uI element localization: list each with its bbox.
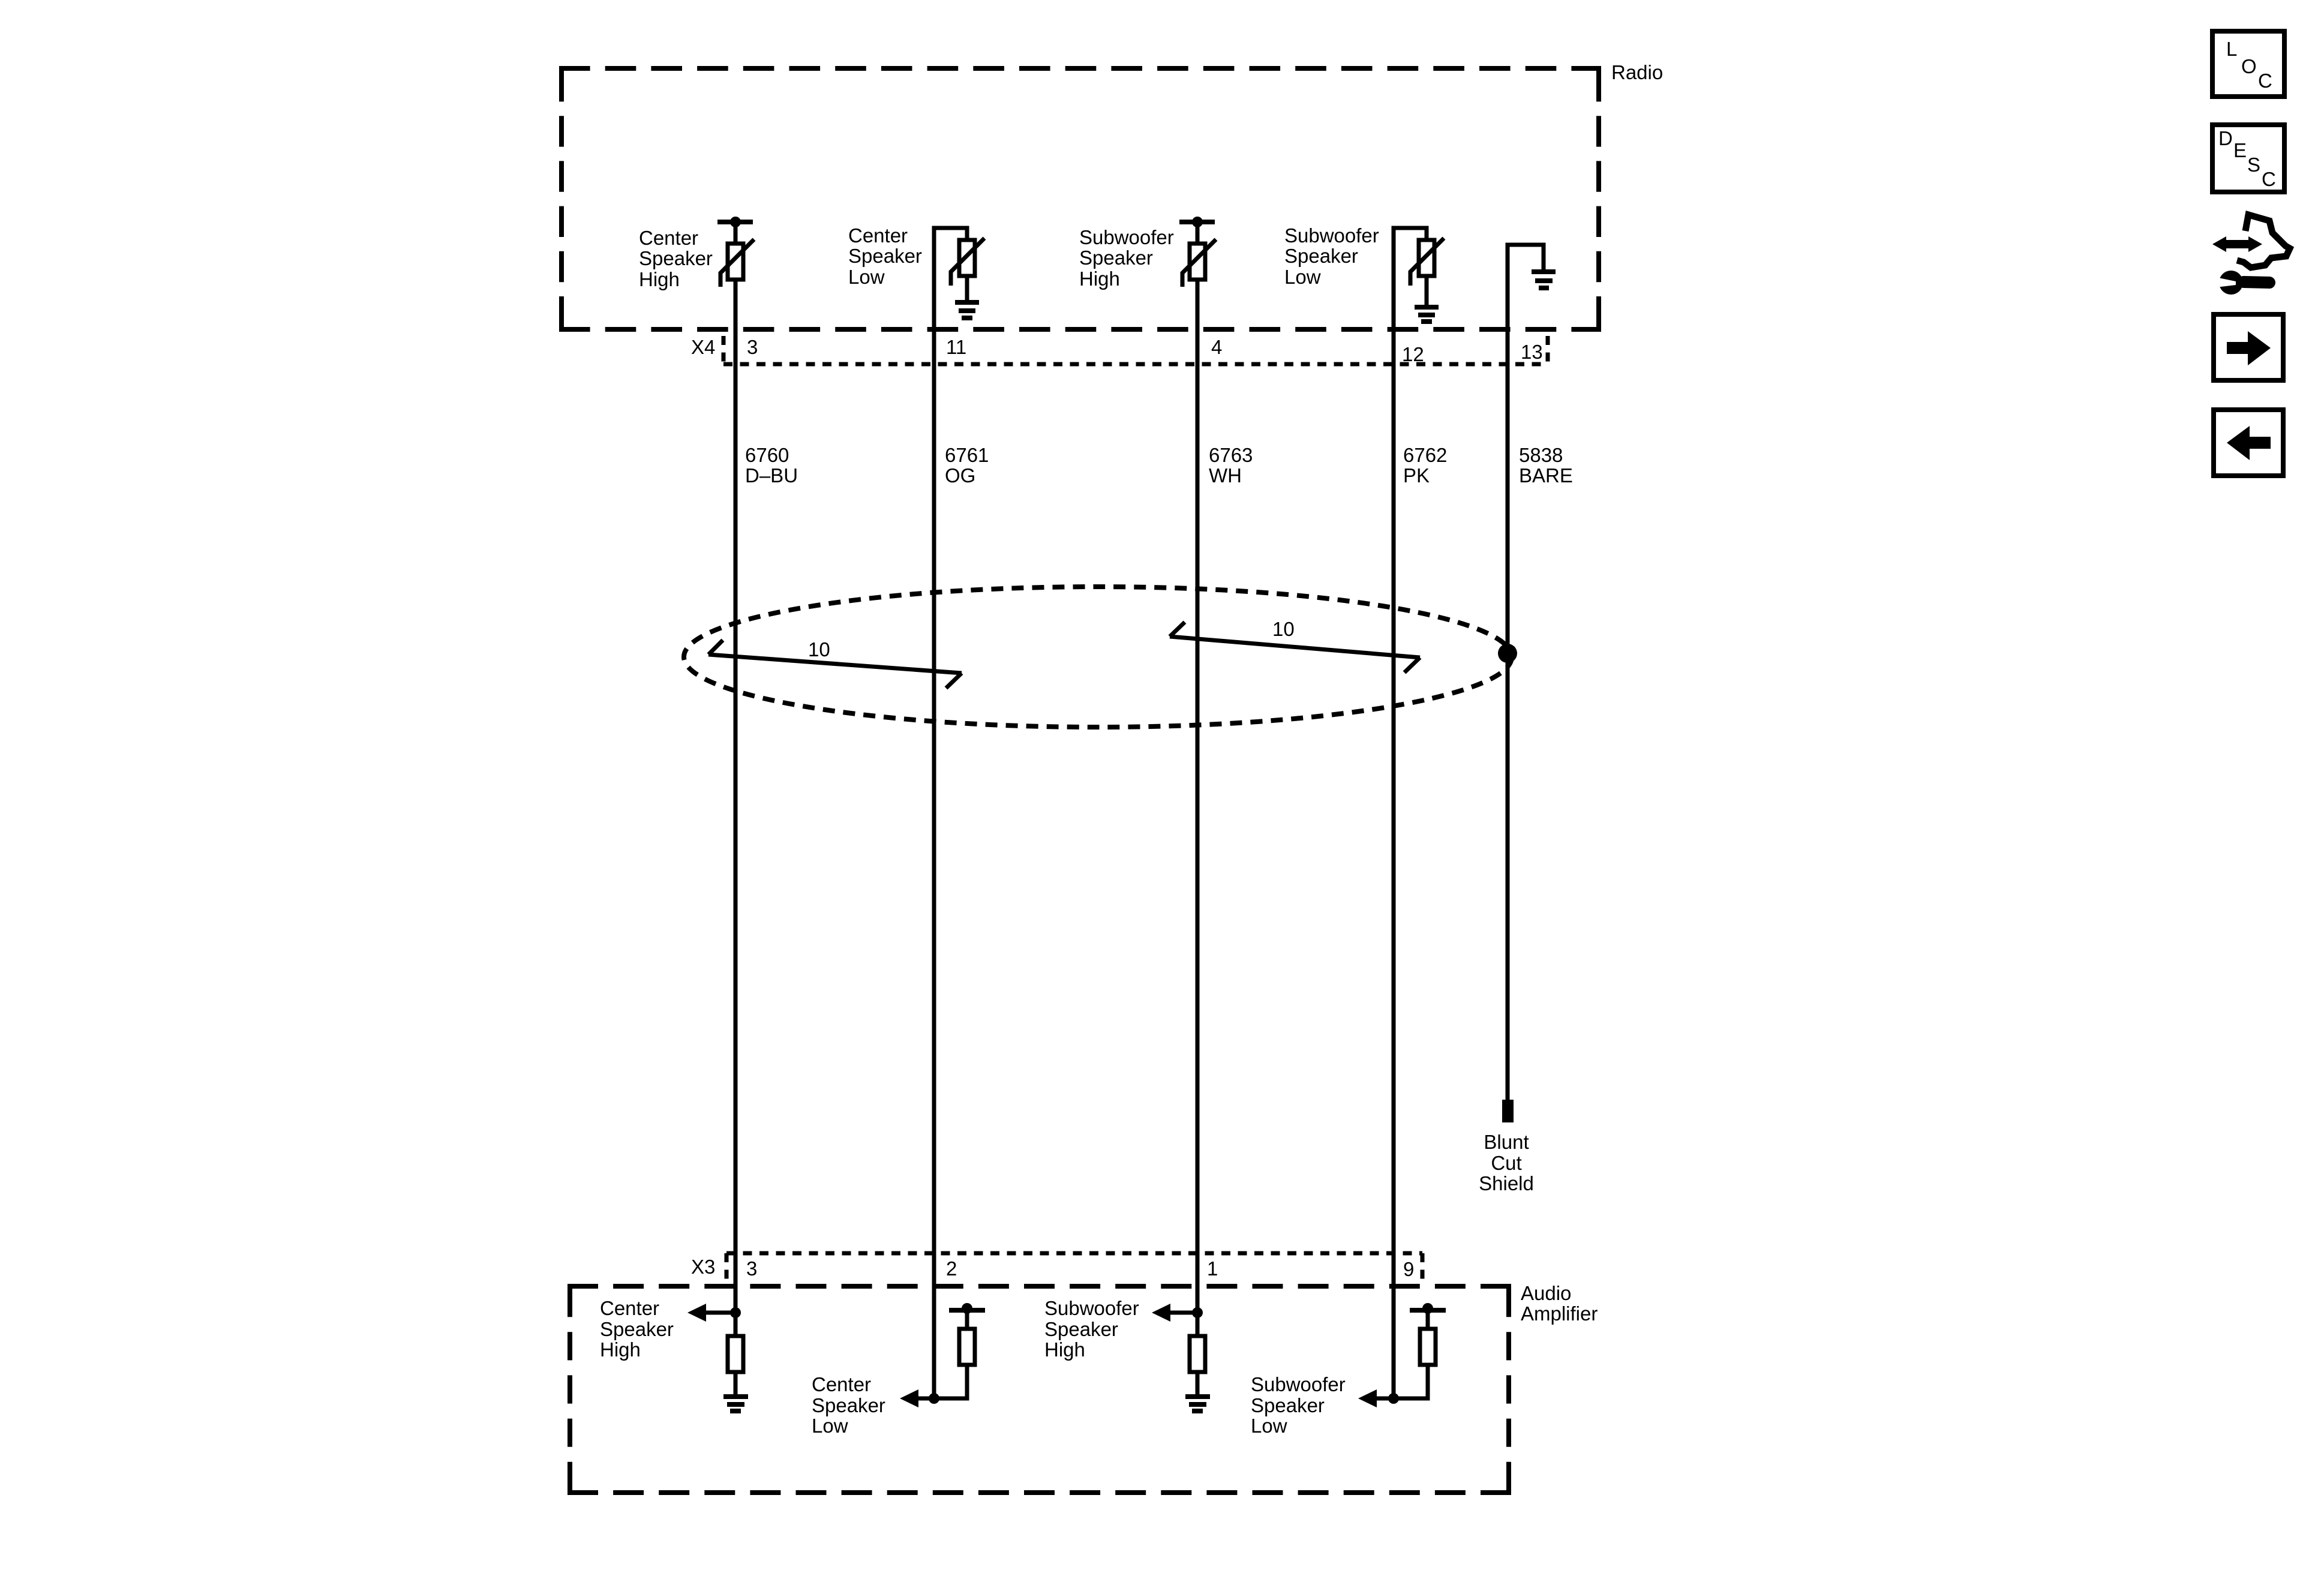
svg-text:Speaker: Speaker (1284, 245, 1358, 267)
svg-text:3: 3 (747, 336, 758, 358)
svg-text:Low: Low (1251, 1415, 1287, 1437)
svg-text:Center: Center (812, 1373, 871, 1395)
svg-text:Speaker: Speaker (812, 1394, 885, 1416)
svg-text:Amplifier: Amplifier (1521, 1302, 1598, 1325)
svg-text:D–BU: D–BU (745, 464, 798, 487)
svg-text:Cut: Cut (1491, 1152, 1521, 1174)
svg-text:Speaker: Speaker (1251, 1394, 1325, 1416)
svg-text:Center: Center (639, 227, 698, 249)
svg-text:High: High (1079, 268, 1120, 290)
svg-text:O: O (2241, 55, 2257, 77)
svg-text:High: High (600, 1338, 641, 1361)
svg-text:High: High (639, 268, 680, 290)
svg-text:6762: 6762 (1403, 444, 1447, 466)
svg-text:PK: PK (1403, 464, 1430, 487)
svg-text:6760: 6760 (745, 444, 789, 466)
svg-text:1: 1 (1207, 1257, 1218, 1280)
svg-text:Low: Low (848, 266, 885, 288)
svg-text:High: High (1044, 1338, 1085, 1361)
svg-text:Speaker: Speaker (639, 247, 713, 269)
svg-text:Subwoofer: Subwoofer (1079, 226, 1174, 248)
svg-text:Blunt: Blunt (1484, 1131, 1529, 1153)
svg-text:BARE: BARE (1519, 464, 1573, 487)
svg-text:X3: X3 (691, 1256, 715, 1278)
svg-text:L: L (2226, 38, 2237, 60)
svg-text:OG: OG (945, 464, 975, 487)
svg-text:2: 2 (946, 1257, 957, 1280)
svg-text:Shield: Shield (1479, 1172, 1534, 1194)
svg-text:4: 4 (1211, 336, 1222, 358)
svg-text:Center: Center (848, 224, 908, 247)
svg-text:6763: 6763 (1209, 444, 1253, 466)
svg-text:10: 10 (808, 638, 830, 661)
svg-text:Radio: Radio (1611, 61, 1663, 83)
svg-text:9: 9 (1403, 1258, 1414, 1280)
svg-text:D: D (2218, 127, 2233, 149)
svg-text:Low: Low (1284, 266, 1321, 288)
svg-text:6761: 6761 (945, 444, 989, 466)
svg-text:X4: X4 (691, 336, 715, 358)
svg-text:11: 11 (946, 336, 966, 358)
svg-text:Speaker: Speaker (1079, 247, 1153, 269)
svg-text:Low: Low (812, 1415, 848, 1437)
svg-text:5838: 5838 (1519, 444, 1563, 466)
svg-text:13: 13 (1521, 341, 1543, 363)
svg-text:12: 12 (1402, 343, 1424, 365)
svg-text:Speaker: Speaker (848, 245, 922, 267)
svg-text:C: C (2258, 70, 2272, 92)
svg-text:3: 3 (746, 1257, 757, 1280)
svg-text:E: E (2233, 139, 2247, 161)
svg-text:C: C (2262, 168, 2276, 190)
svg-text:WH: WH (1209, 464, 1242, 487)
svg-text:Audio: Audio (1521, 1282, 1571, 1304)
svg-text:S: S (2247, 154, 2260, 176)
svg-text:Speaker: Speaker (600, 1318, 674, 1340)
svg-text:Subwoofer: Subwoofer (1044, 1297, 1139, 1319)
svg-text:Subwoofer: Subwoofer (1251, 1373, 1346, 1395)
svg-text:Center: Center (600, 1297, 659, 1319)
svg-text:10: 10 (1272, 618, 1295, 640)
svg-text:Speaker: Speaker (1044, 1318, 1118, 1340)
svg-text:Subwoofer: Subwoofer (1284, 224, 1379, 247)
